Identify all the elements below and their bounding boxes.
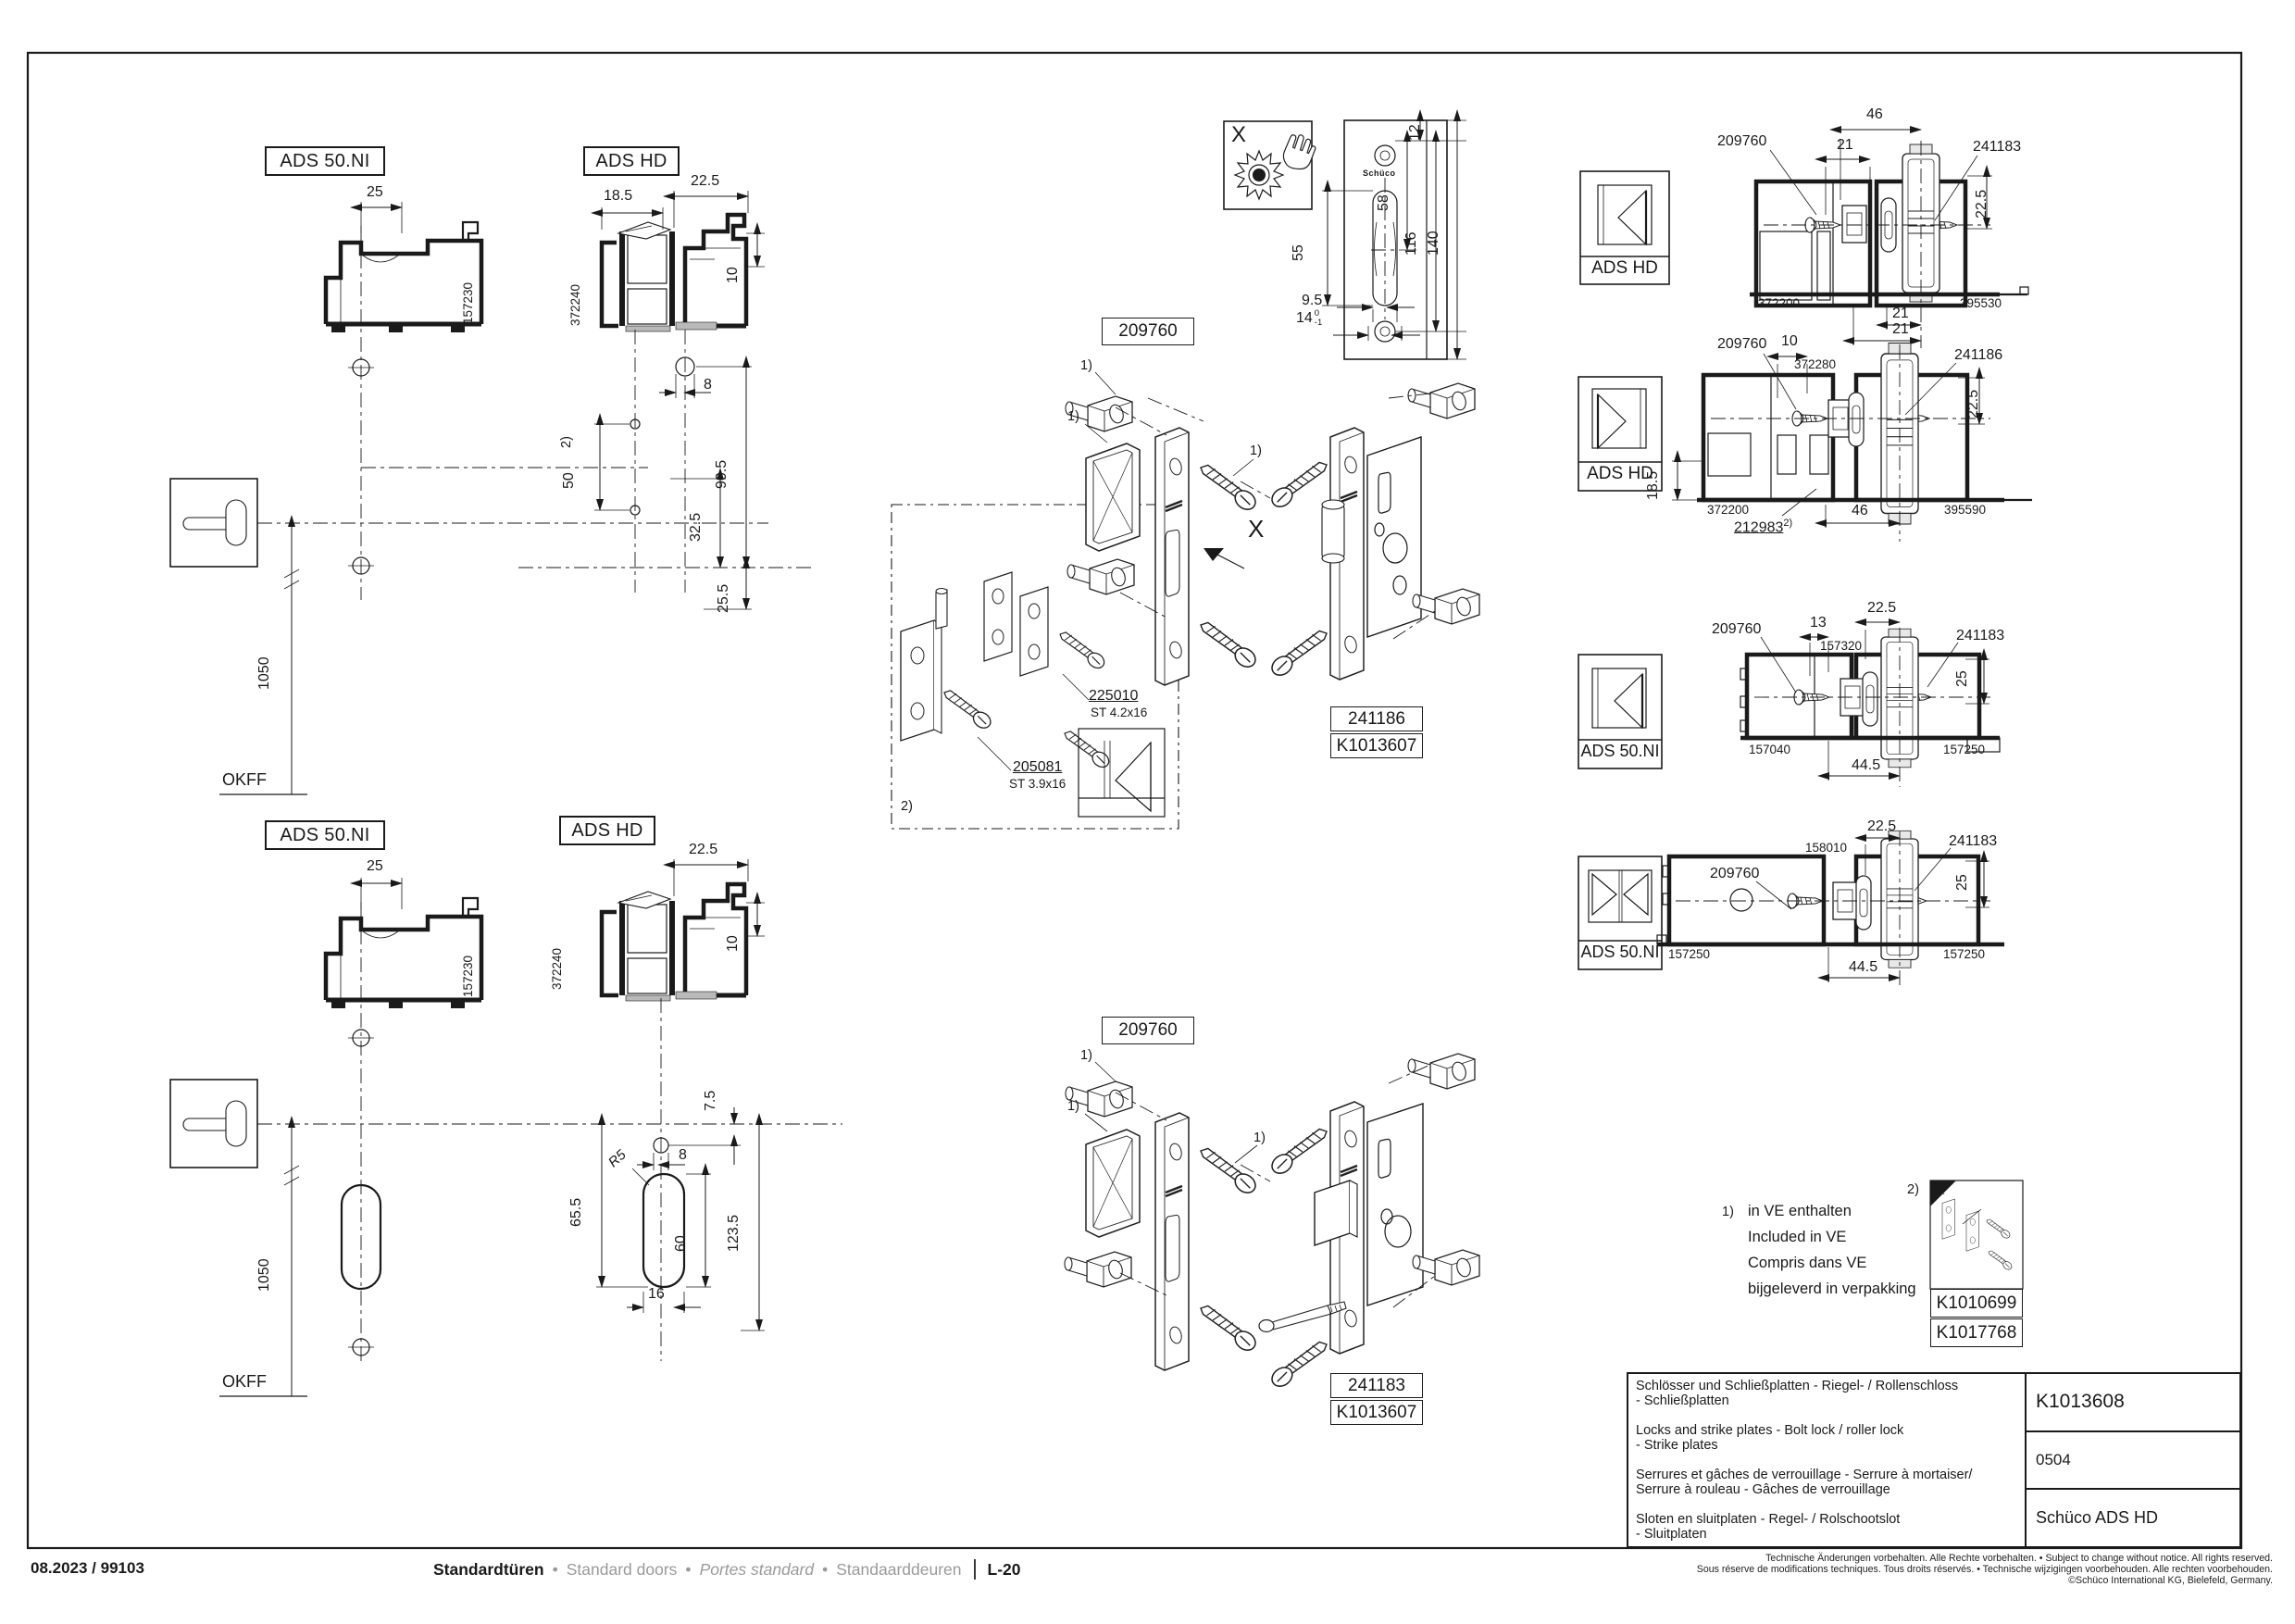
profile-157250: 157250 xyxy=(1943,743,1985,757)
dim-7-5: 7.5 xyxy=(702,1091,719,1111)
dim-8: 8 xyxy=(704,376,712,394)
footer-breadcrumb: Standardtüren • Standard doors • Portes … xyxy=(433,1559,1020,1580)
dim-22-5: 22.5 xyxy=(691,172,719,190)
upper-left-drawing xyxy=(170,191,815,794)
dim-44-5: 44.5 xyxy=(1849,958,1877,976)
dim-1050: 1050 xyxy=(256,1258,273,1292)
okff-label: OKFF xyxy=(222,771,267,789)
profile-395590: 395590 xyxy=(1944,503,1986,518)
dim-14: 14 xyxy=(1296,310,1313,326)
profile-number-372240: 372240 xyxy=(550,948,565,990)
leader-241183: 241183 xyxy=(1956,627,2004,644)
kit-code: K1010699 xyxy=(1937,1293,2017,1314)
footer-divider xyxy=(974,1559,976,1580)
kit-box-k1017768: K1017768 xyxy=(1930,1318,2023,1347)
screw-size: ST 4.2x16 xyxy=(1091,706,1147,720)
dim-14-tol: 140-1 xyxy=(1296,309,1322,328)
note-ref-2: 2) xyxy=(558,436,576,448)
system-label: ADS 50.NI xyxy=(1579,743,1661,760)
title-fr: Serrures et gâches de verrouillage - Ser… xyxy=(1636,1468,2017,1497)
right-section-3 xyxy=(1578,622,2000,787)
part-number: 209760 xyxy=(1118,1020,1177,1041)
leader-209760: 209760 xyxy=(1717,335,1766,353)
separator-dot: • xyxy=(685,1560,691,1580)
footer-date-code: 08.2023 / 99103 xyxy=(31,1559,144,1578)
callout-1: 1) xyxy=(1080,1047,1092,1065)
leader-209760: 209760 xyxy=(1717,132,1766,150)
dim-44-5: 44.5 xyxy=(1852,756,1880,774)
title-block: Schlösser und Schließplatten - Riegel- /… xyxy=(1627,1372,2241,1548)
dim-140: 140 xyxy=(1425,231,1442,256)
dim-123-5: 123.5 xyxy=(725,1215,742,1252)
leader-209760: 209760 xyxy=(1712,620,1761,638)
exploded-bottom-drawing xyxy=(1065,1054,1479,1390)
screw-code-225010: 225010 xyxy=(1089,687,1138,705)
system-label: ADS 50.NI xyxy=(1579,943,1661,961)
dim-50: 50 xyxy=(560,472,578,489)
doc-version: 0504 xyxy=(2027,1430,2239,1489)
kit-code-box: K1013607 xyxy=(1330,733,1423,758)
dim-25: 25 xyxy=(367,857,383,875)
legend-line-nl: bijgeleverd in verpakking xyxy=(1748,1280,1916,1298)
lock-code-box: 241186 xyxy=(1330,706,1423,731)
kit-code: K1013607 xyxy=(1337,1403,1417,1423)
dim-22-5: 22.5 xyxy=(1964,390,1982,418)
dim-18-5: 18.5 xyxy=(604,187,632,205)
part-box-209760: 209760 xyxy=(1102,318,1194,345)
dim-90-5: 90.5 xyxy=(713,460,730,489)
leader-241183: 241183 xyxy=(1973,138,2021,156)
leader-241186: 241186 xyxy=(1954,346,2002,364)
title-block-titles: Schlösser und Schließplatten - Riegel- /… xyxy=(1628,1374,2025,1546)
door-swing-pictogram xyxy=(1079,729,1165,817)
dim-60: 60 xyxy=(672,1235,690,1252)
dim-12: 12 xyxy=(1406,124,1424,141)
callout-1: 1) xyxy=(1250,443,1262,460)
lock-code: 241186 xyxy=(1348,709,1405,730)
leader-241183: 241183 xyxy=(1949,832,1997,850)
label-text: ADS 50.NI xyxy=(280,151,369,172)
dim-25: 25 xyxy=(367,183,383,201)
legal-line-2: Sous réserve de modifications techniques… xyxy=(1697,1564,2273,1575)
profile-157320: 157320 xyxy=(1820,639,1862,654)
profile-158010: 158010 xyxy=(1805,841,1847,856)
screw-size: ST 3.9x16 xyxy=(1009,777,1066,792)
dim-65-5: 65.5 xyxy=(568,1198,585,1227)
profile-372280: 372280 xyxy=(1794,357,1836,372)
dim-25: 25 xyxy=(1953,874,1971,891)
callout-1: 1) xyxy=(1080,357,1092,375)
gasket-code: 2129832) xyxy=(1734,515,1792,536)
okff-label: OKFF xyxy=(222,1373,267,1391)
legend-line-en: Included in VE xyxy=(1748,1229,1846,1246)
part-box-209760: 209760 xyxy=(1102,1017,1194,1044)
dim-16: 16 xyxy=(648,1285,665,1303)
lower-left-drawing xyxy=(170,859,842,1396)
title-block-meta: K1013608 0504 Schüco ADS HD xyxy=(2025,1374,2239,1546)
detail-x-label: X xyxy=(1231,126,1246,144)
legend-ref-1: 1) xyxy=(1722,1204,1734,1221)
label-adshd-upper: ADS HD xyxy=(583,146,680,176)
label-text: ADS 50.NI xyxy=(280,825,369,846)
separator-dot: • xyxy=(553,1560,558,1580)
legal-line-3: ©Schüco International KG, Bielefeld, Ger… xyxy=(1697,1575,2273,1586)
handle-icon xyxy=(170,479,257,567)
title-nl: Sloten en sluitplaten - Regel- / Rolscho… xyxy=(1636,1512,2017,1542)
kit-box-k1010699: K1010699 xyxy=(1930,1289,2023,1318)
profile-157250-left: 157250 xyxy=(1668,947,1710,962)
profile-number-372240: 372240 xyxy=(568,284,583,326)
tol-bot: -1 xyxy=(1315,319,1322,328)
saw-blade-icon xyxy=(1235,151,1283,199)
label-text: ADS HD xyxy=(595,151,667,172)
nav-de: Standardtüren xyxy=(433,1560,544,1580)
legend-drawing xyxy=(1930,1181,2023,1289)
callout-1: 1) xyxy=(1067,1098,1079,1116)
doc-number: K1013608 xyxy=(2027,1374,2239,1430)
kit-code-box: K1013607 xyxy=(1330,1400,1423,1425)
dim-8: 8 xyxy=(679,1146,687,1164)
dim-21c: 21 xyxy=(1892,320,1909,338)
dim-10: 10 xyxy=(724,267,742,283)
dim-46: 46 xyxy=(1852,502,1868,519)
nav-nl: Standaarddeuren xyxy=(836,1560,961,1580)
dim-9-5: 9.5 xyxy=(1302,292,1322,309)
profile-157040: 157040 xyxy=(1749,743,1790,757)
legal-line-1: Technische Änderungen vorbehalten. Alle … xyxy=(1697,1553,2273,1564)
leader-209760: 209760 xyxy=(1710,865,1759,882)
label-adshd-lower: ADS HD xyxy=(559,816,655,845)
gasket-ref: 2) xyxy=(1783,518,1792,529)
label-ads50ni-upper: ADS 50.NI xyxy=(265,146,385,176)
view-x-marker: X xyxy=(1248,520,1264,538)
right-section-4 xyxy=(1578,831,2004,989)
part-number: 209760 xyxy=(1118,321,1177,342)
page-code: L-20 xyxy=(988,1560,1021,1580)
dim-58: 58 xyxy=(1375,194,1392,211)
callout-1: 1) xyxy=(1067,408,1079,426)
exploded-top-drawing xyxy=(892,372,1479,829)
legend-line-de: in VE enthalten xyxy=(1748,1203,1852,1220)
drawing-sheet: ADS 50.NI ADS HD ADS 50.NI ADS HD 25 157… xyxy=(0,0,2295,1624)
dim-13: 13 xyxy=(1810,614,1827,631)
legend-line-fr: Compris dans VE xyxy=(1748,1255,1866,1272)
dim-46: 46 xyxy=(1866,106,1883,123)
dim-55: 55 xyxy=(1290,244,1307,261)
lock-code: 241183 xyxy=(1348,1376,1405,1396)
hand-icon xyxy=(1283,135,1315,169)
dim-22-5: 22.5 xyxy=(1973,190,1990,219)
nav-en: Standard doors xyxy=(567,1560,678,1580)
dim-25-5: 25.5 xyxy=(715,584,732,613)
lock-code-box: 241183 xyxy=(1330,1373,1423,1398)
title-en: Locks and strike plates - Bolt lock / ro… xyxy=(1636,1423,2017,1453)
profile-number-157230: 157230 xyxy=(461,282,476,324)
profile-157250-right: 157250 xyxy=(1943,947,1985,962)
dim-10: 10 xyxy=(1781,332,1798,350)
kit-code: K1017768 xyxy=(1937,1323,2017,1343)
note-ref-2: 2) xyxy=(901,798,913,816)
label-ads50ni-lower: ADS 50.NI xyxy=(265,820,385,850)
label-text: ADS HD xyxy=(571,820,642,842)
dim-116: 116 xyxy=(1403,231,1420,256)
brand-logo: Schüco xyxy=(1363,165,1396,182)
screw-code-205081: 205081 xyxy=(1013,758,1062,776)
right-section-1 xyxy=(1580,130,2028,348)
dim-32-5: 32.5 xyxy=(687,513,705,542)
profile-372200: 372200 xyxy=(1758,296,1800,311)
profile-number-157230: 157230 xyxy=(461,956,476,997)
dim-22-5: 22.5 xyxy=(689,841,717,858)
dim-25: 25 xyxy=(1953,670,1971,687)
dim-10: 10 xyxy=(724,935,742,952)
dim-21: 21 xyxy=(1837,136,1853,154)
dim-1050: 1050 xyxy=(256,656,273,690)
nav-fr: Portes standard xyxy=(700,1560,815,1580)
handle-icon xyxy=(170,1080,257,1168)
gasket-212983: 212983 xyxy=(1734,519,1783,535)
separator-dot: • xyxy=(822,1560,828,1580)
system-label: ADS HD xyxy=(1581,259,1668,277)
footer-legal: Technische Änderungen vorbehalten. Alle … xyxy=(1697,1553,2273,1586)
dim-22-5: 22.5 xyxy=(1867,818,1896,835)
callout-1: 1) xyxy=(1254,1130,1266,1147)
kit-code: K1013607 xyxy=(1337,736,1417,756)
dim-18-5: 18.5 xyxy=(1644,471,1662,500)
legend-ref-2: 2) xyxy=(1907,1181,1919,1199)
system-name: Schüco ADS HD xyxy=(2027,1488,2239,1546)
title-de: Schlösser und Schließplatten - Riegel- /… xyxy=(1636,1379,2017,1408)
dim-22-5: 22.5 xyxy=(1867,599,1896,617)
profile-395530: 395530 xyxy=(1960,296,2002,311)
